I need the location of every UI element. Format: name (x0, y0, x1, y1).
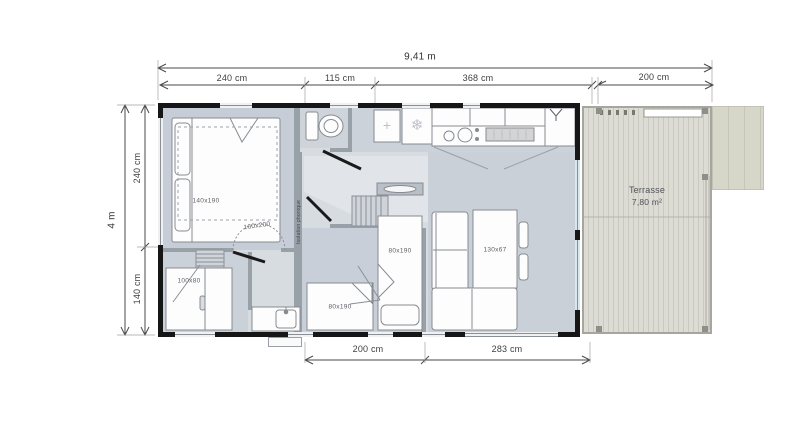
terrace-side-railing (706, 176, 710, 330)
dim-overall-depth: 4 m (107, 211, 118, 228)
chair (519, 222, 528, 248)
shower-handle (200, 296, 205, 310)
dim-top-4: 200 cm (639, 72, 670, 82)
sofa-side (432, 212, 468, 290)
terrace-area: 7,80 m² (632, 197, 662, 207)
dim-left-2: 140 cm (132, 274, 142, 305)
terrace-railing-bar (644, 109, 702, 117)
master-bed-size: 140x190 (192, 198, 219, 205)
floor-plan: 9,41 m 240 cm 115 cm 368 cm 200 cm 4 m 2… (0, 0, 800, 448)
sink-basin-large (458, 128, 472, 142)
snowflake-icon: ❄ (411, 116, 424, 134)
washbasin-icon (252, 307, 300, 331)
sofa-bottom (432, 288, 517, 330)
pillow (381, 305, 419, 325)
shower-size: 100x80 (177, 278, 200, 285)
insulation-label: Isolation phonique (296, 200, 302, 244)
single-bed-right-size: 80x190 (388, 248, 411, 255)
kitchen-corner-unit (545, 108, 575, 146)
terrace-posts (596, 108, 708, 332)
dim-bottom-1: 200 cm (353, 344, 384, 354)
table-size: 130x67 (483, 247, 506, 254)
pillow (175, 179, 190, 231)
dim-overall-width: 9,41 m (404, 52, 436, 63)
plus-vent-icon: + (383, 117, 391, 133)
terrace-label: Terrasse (629, 185, 665, 195)
dim-top-3: 368 cm (463, 73, 494, 83)
kitchen-upper-cabinets (432, 108, 545, 126)
plan-drawing (0, 0, 800, 448)
pillow (175, 123, 190, 175)
dim-bottom-2: 283 cm (492, 344, 523, 354)
terrace-balusters (600, 110, 635, 115)
sink-basin-small (444, 131, 454, 141)
dim-top-1: 240 cm (217, 73, 248, 83)
single-bed-bottom-size: 80x190 (328, 304, 351, 311)
terrace-structure (583, 107, 711, 333)
chair (519, 254, 528, 280)
dim-left-1: 240 cm (132, 153, 142, 184)
toilet-icon (306, 112, 343, 140)
dim-top-2: 115 cm (325, 73, 355, 83)
